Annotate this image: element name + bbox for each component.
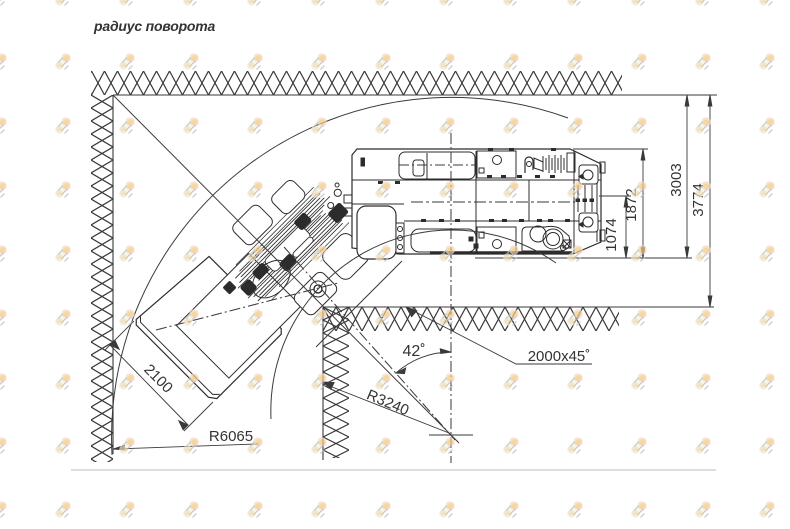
svg-text:3003: 3003 <box>668 163 685 196</box>
svg-text:R6065: R6065 <box>209 428 253 445</box>
svg-text:42˚: 42˚ <box>402 343 425 360</box>
svg-text:радиус поворота: радиус поворота <box>93 18 216 34</box>
svg-text:1074: 1074 <box>603 218 620 251</box>
svg-text:2000x45˚: 2000x45˚ <box>528 348 591 365</box>
